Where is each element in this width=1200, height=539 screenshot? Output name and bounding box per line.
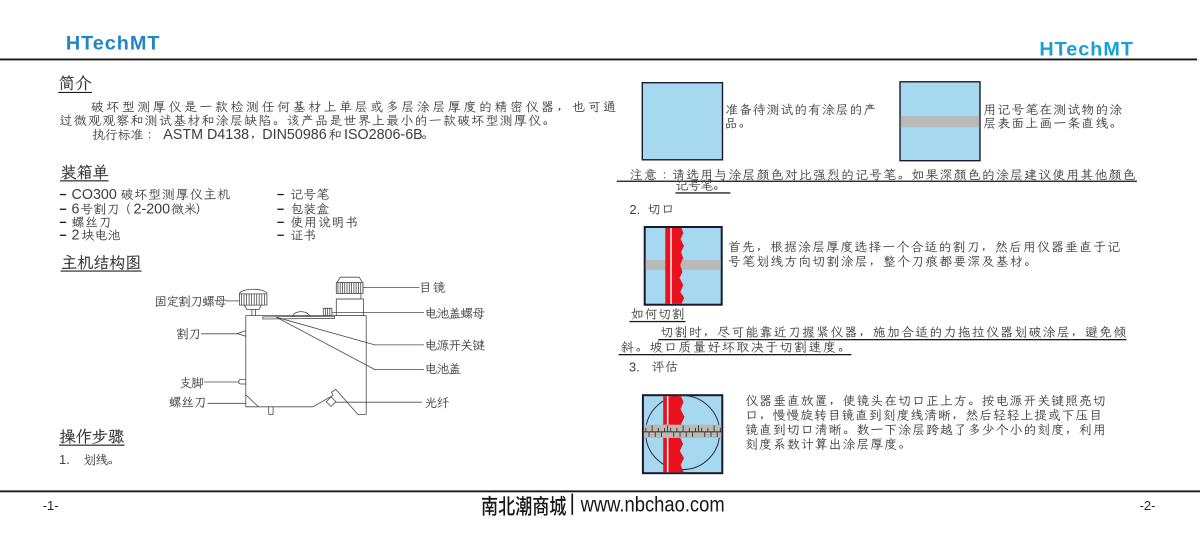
svg-text:ASTM D4138: ASTM D4138 <box>163 127 249 143</box>
svg-text:6: 6 <box>72 202 80 218</box>
svg-text:-2-: -2- <box>1140 498 1156 513</box>
svg-text:2-200: 2-200 <box>134 202 171 218</box>
svg-text:2: 2 <box>72 228 80 244</box>
svg-text:DIN50986: DIN50986 <box>262 127 326 143</box>
svg-text:2.: 2. <box>629 202 640 217</box>
svg-text:CO300: CO300 <box>72 187 117 203</box>
svg-text:www.nbchao.com: www.nbchao.com <box>580 493 725 517</box>
svg-text:ISO2806-6B: ISO2806-6B <box>344 127 423 143</box>
svg-text:1.: 1. <box>59 452 70 467</box>
svg-text:3.: 3. <box>629 360 640 375</box>
svg-text:-1-: -1- <box>43 498 59 513</box>
svg-text:HTechMT: HTechMT <box>66 32 161 54</box>
svg-text:HTechMT: HTechMT <box>1039 39 1134 61</box>
